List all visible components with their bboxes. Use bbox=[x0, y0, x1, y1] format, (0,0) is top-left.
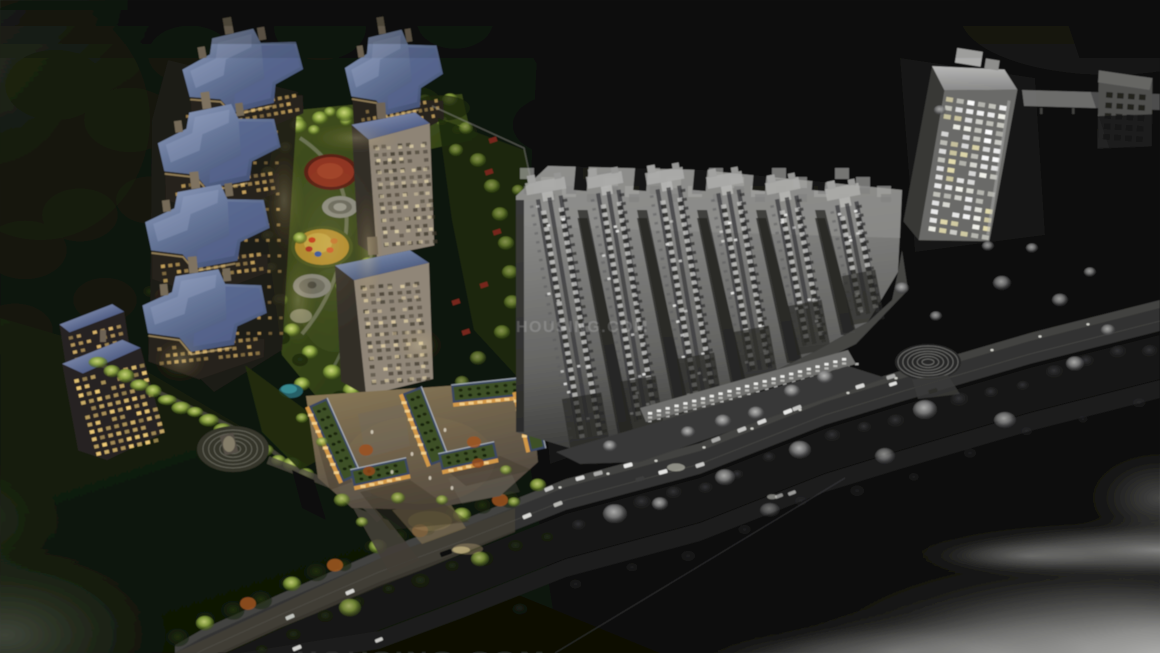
svg-text:HOUSING.COM: HOUSING.COM bbox=[516, 319, 649, 336]
svg-text:HOUSING.COM: HOUSING.COM bbox=[296, 646, 547, 653]
